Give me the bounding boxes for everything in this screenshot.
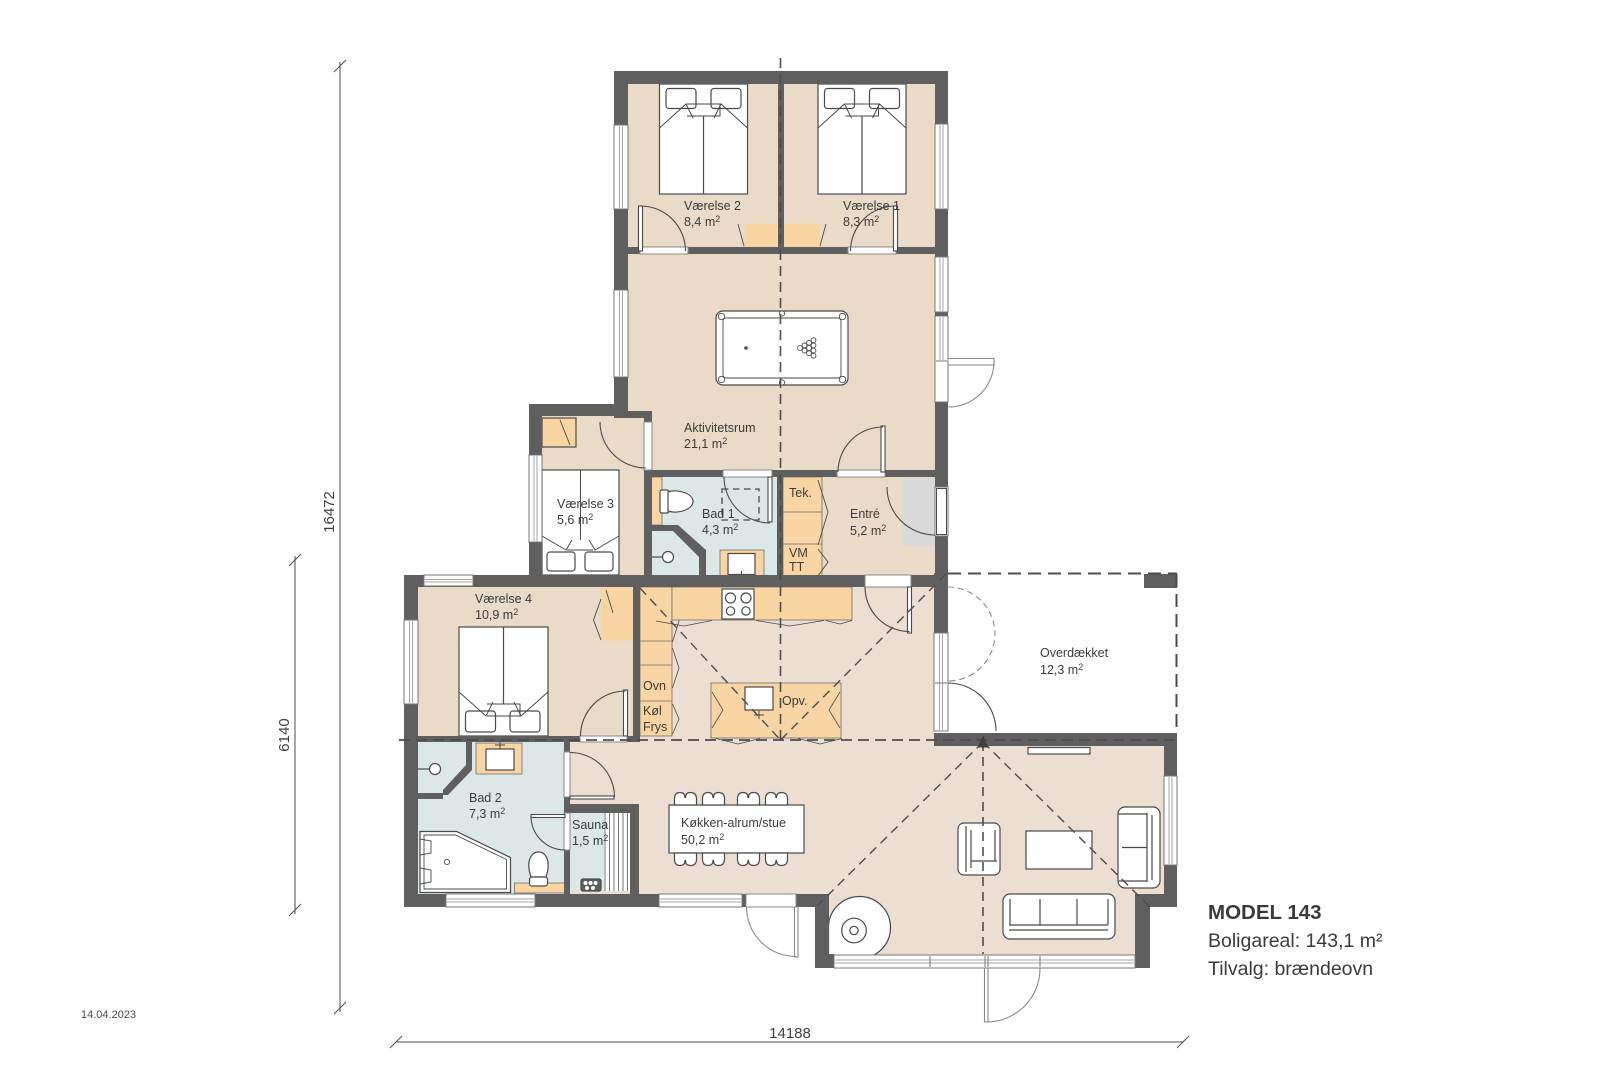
svg-text:Opv.: Opv. bbox=[782, 694, 807, 708]
svg-text:Tek.: Tek. bbox=[789, 486, 812, 500]
svg-text:TT: TT bbox=[789, 560, 805, 574]
svg-text:14188: 14188 bbox=[769, 1025, 811, 1042]
svg-text:Værelse 1: Værelse 1 bbox=[843, 199, 900, 213]
svg-text:Bad 2: Bad 2 bbox=[469, 791, 502, 805]
svg-text:Frys: Frys bbox=[643, 720, 667, 734]
svg-text:4,3 m2: 4,3 m2 bbox=[702, 522, 738, 537]
svg-text:Køkken-alrum/stue: Køkken-alrum/stue bbox=[681, 816, 786, 830]
svg-text:Værelse 3: Værelse 3 bbox=[557, 497, 614, 511]
svg-text:5,2 m2: 5,2 m2 bbox=[850, 523, 886, 538]
svg-text:Sauna: Sauna bbox=[572, 818, 608, 832]
svg-text:Ovn: Ovn bbox=[643, 679, 666, 693]
svg-text:Entré: Entré bbox=[850, 507, 880, 521]
svg-text:6140: 6140 bbox=[276, 718, 293, 751]
svg-text:7,3 m2: 7,3 m2 bbox=[469, 806, 505, 821]
svg-text:14.04.2023: 14.04.2023 bbox=[81, 1009, 136, 1021]
svg-text:MODEL 143: MODEL 143 bbox=[1208, 901, 1322, 924]
svg-text:10,9 m2: 10,9 m2 bbox=[475, 607, 518, 622]
svg-text:21,1 m2: 21,1 m2 bbox=[684, 436, 727, 451]
svg-text:Køl: Køl bbox=[643, 704, 662, 718]
svg-text:Aktivitetsrum: Aktivitetsrum bbox=[684, 421, 756, 435]
svg-text:1,5 m2: 1,5 m2 bbox=[572, 833, 608, 848]
svg-text:Boligareal: 143,1 m²: Boligareal: 143,1 m² bbox=[1208, 930, 1383, 952]
svg-text:50,2 m2: 50,2 m2 bbox=[681, 832, 724, 847]
svg-text:8,3 m2: 8,3 m2 bbox=[843, 214, 879, 229]
svg-text:16472: 16472 bbox=[321, 491, 338, 533]
svg-text:Værelse 2: Værelse 2 bbox=[684, 199, 741, 213]
svg-text:VM: VM bbox=[789, 546, 808, 560]
svg-text:5,6 m2: 5,6 m2 bbox=[557, 512, 593, 527]
svg-text:Bad 1: Bad 1 bbox=[702, 507, 735, 521]
svg-text:Overdækket: Overdækket bbox=[1040, 646, 1109, 660]
svg-text:Værelse 4: Værelse 4 bbox=[475, 592, 532, 606]
svg-text:Tilvalg: brændeovn: Tilvalg: brændeovn bbox=[1208, 958, 1373, 980]
svg-text:12,3 m2: 12,3 m2 bbox=[1040, 662, 1083, 677]
svg-text:8,4 m2: 8,4 m2 bbox=[684, 214, 720, 229]
